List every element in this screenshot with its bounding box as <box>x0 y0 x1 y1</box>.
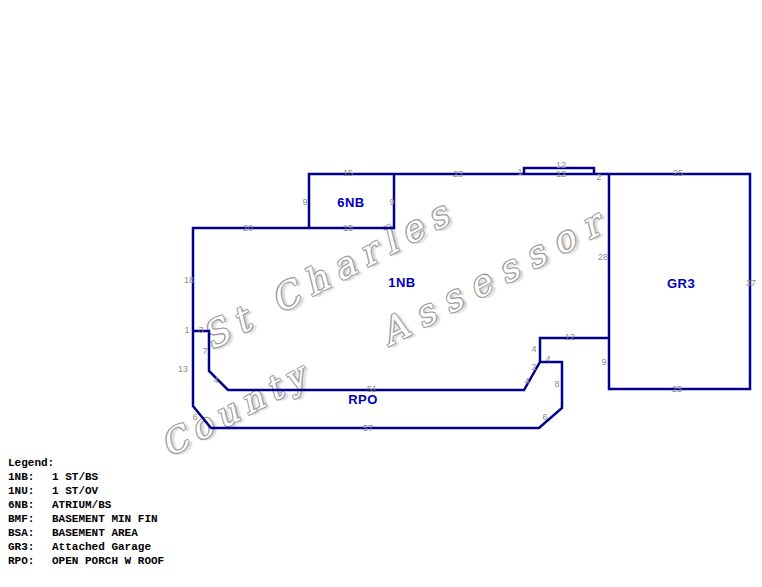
dimension-label: 13 <box>178 364 188 374</box>
dimension-label: 6 <box>192 412 197 422</box>
legend-code: 1NB: <box>8 470 52 484</box>
area-label-gr3: GR3 <box>667 276 695 291</box>
legend-code: BSA: <box>8 526 52 540</box>
legend-code: BMF: <box>8 512 52 526</box>
legend-desc: ATRIUM/BS <box>52 498 111 512</box>
legend-code: 1NU: <box>8 484 52 498</box>
legend-desc: BASEMENT MIN FIN <box>52 512 158 526</box>
dimension-label: 20 <box>243 223 253 233</box>
legend-code: GR3: <box>8 540 52 554</box>
legend-desc: Attached Garage <box>52 540 151 554</box>
building-outline-path <box>193 168 750 428</box>
legend-desc: BASEMENT AREA <box>52 526 138 540</box>
legend: Legend: 1NB: 1 ST/BS 1NU: 1 ST/OV 6NB: A… <box>8 456 164 568</box>
legend-row: 1NU: 1 ST/OV <box>8 484 164 498</box>
legend-desc: 1 ST/BS <box>52 470 98 484</box>
dimension-label: 4 <box>545 354 550 364</box>
dimension-label: 3 <box>198 325 203 335</box>
legend-row: BSA: BASEMENT AREA <box>8 526 164 540</box>
dimension-label: 4 <box>213 375 218 385</box>
dimension-label: 57 <box>363 423 373 433</box>
dimension-label: 15 <box>343 168 353 178</box>
legend-row: 6NB: ATRIUM/BS <box>8 498 164 512</box>
legend-row: BMF: BASEMENT MIN FIN <box>8 512 164 526</box>
dimension-label: 37 <box>746 278 756 288</box>
dimension-label: 1 <box>184 325 189 335</box>
dimension-label: 9 <box>302 197 307 207</box>
dimension-label: 4 <box>531 344 536 354</box>
dimension-label: 9 <box>389 197 394 207</box>
dimension-label: 7 <box>202 346 207 356</box>
dimension-label: 25 <box>673 168 683 178</box>
legend-title: Legend: <box>8 456 164 470</box>
dimension-label: 23 <box>453 169 463 179</box>
dimension-label: 15 <box>343 223 353 233</box>
dimension-label: 9 <box>601 357 606 367</box>
legend-code: RPO: <box>8 554 52 568</box>
legend-desc: 1 ST/OV <box>52 484 98 498</box>
dimension-label: 12 <box>556 169 566 179</box>
dimension-label: 2 <box>531 362 536 372</box>
legend-row: 1NB: 1 ST/BS <box>8 470 164 484</box>
area-label-1nb: 1NB <box>388 275 416 290</box>
legend-row: RPO: OPEN PORCH W ROOF <box>8 554 164 568</box>
area-label-rpo: RPO <box>348 392 378 407</box>
dimension-label: 4 <box>524 376 529 386</box>
legend-desc: OPEN PORCH W ROOF <box>52 554 164 568</box>
assessor-sketch-page: St Charles County Assessor 15 23 1 12 12… <box>0 0 762 587</box>
legend-code: 6NB: <box>8 498 52 512</box>
legend-row: GR3: Attached Garage <box>8 540 164 554</box>
dimension-label: 6 <box>542 412 547 422</box>
dimension-label: 12 <box>565 332 575 342</box>
dimension-label: 8 <box>554 379 559 389</box>
dimension-label: 1 <box>517 167 522 177</box>
dimension-label: 25 <box>672 384 682 394</box>
area-label-6nb: 6NB <box>337 195 365 210</box>
dimension-label: 2 <box>596 172 601 182</box>
dimension-label: 28 <box>598 252 608 262</box>
dimension-label: 18 <box>184 275 194 285</box>
